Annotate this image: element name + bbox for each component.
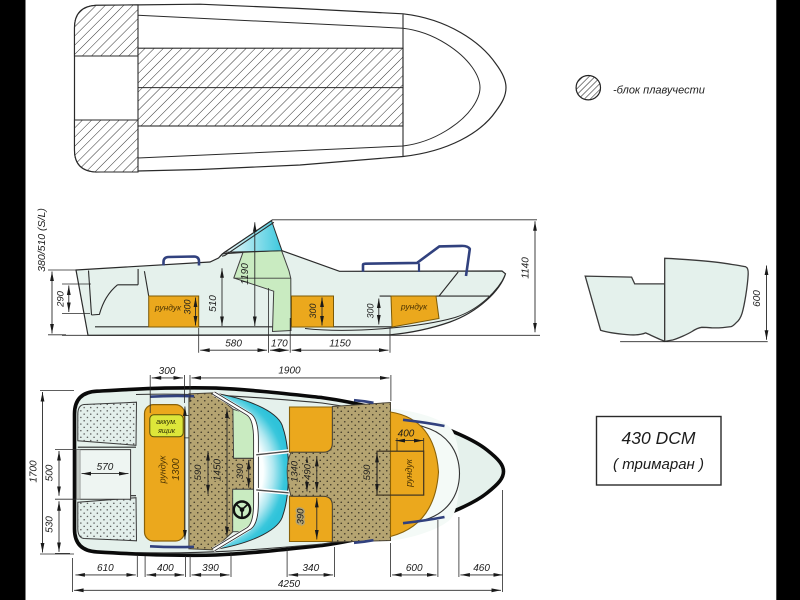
svg-text:390: 390 — [202, 563, 219, 574]
svg-text:530: 530 — [45, 516, 56, 533]
svg-text:500: 500 — [45, 464, 56, 481]
svg-text:580: 580 — [225, 339, 242, 350]
svg-text:510: 510 — [208, 295, 219, 312]
svg-text:380/510 (S/L): 380/510 (S/L) — [36, 208, 48, 272]
svg-text:300: 300 — [159, 366, 176, 377]
svg-text:( тримаран ): ( тримаран ) — [613, 456, 704, 473]
svg-text:4250: 4250 — [278, 579, 301, 590]
svg-text:390: 390 — [296, 508, 307, 525]
svg-text:рундук: рундук — [158, 455, 168, 485]
svg-text:1700: 1700 — [28, 460, 39, 483]
svg-text:ящик: ящик — [157, 428, 176, 435]
svg-text:рундук: рундук — [400, 302, 428, 312]
svg-text:590: 590 — [362, 464, 373, 481]
svg-text:170: 170 — [271, 339, 288, 350]
svg-text:-блок плавучести: -блок плавучести — [613, 85, 705, 97]
svg-text:400: 400 — [157, 563, 174, 574]
svg-text:600: 600 — [752, 290, 763, 307]
svg-text:1340: 1340 — [290, 460, 301, 482]
svg-text:1900: 1900 — [278, 366, 301, 377]
svg-text:400: 400 — [398, 429, 415, 440]
svg-text:490: 490 — [303, 463, 314, 480]
svg-text:600: 600 — [406, 563, 423, 574]
svg-text:430 DCM: 430 DCM — [622, 428, 696, 448]
svg-text:390: 390 — [235, 463, 246, 480]
svg-text:610: 610 — [97, 563, 114, 574]
svg-text:1140: 1140 — [521, 257, 532, 279]
svg-text:рундук: рундук — [154, 303, 182, 313]
svg-text:300: 300 — [183, 299, 193, 314]
svg-text:460: 460 — [473, 563, 490, 574]
svg-text:аккум.: аккум. — [156, 419, 177, 426]
svg-text:590: 590 — [193, 464, 204, 481]
svg-text:300: 300 — [308, 303, 318, 318]
svg-text:570: 570 — [97, 462, 114, 473]
svg-text:1450: 1450 — [213, 458, 224, 481]
svg-text:340: 340 — [302, 563, 319, 574]
svg-text:1150: 1150 — [329, 339, 351, 350]
svg-text:290: 290 — [56, 290, 67, 308]
svg-text:рундук: рундук — [404, 458, 414, 488]
svg-text:300: 300 — [365, 303, 375, 318]
svg-text:1300: 1300 — [171, 458, 182, 481]
svg-text:1190: 1190 — [240, 263, 251, 285]
